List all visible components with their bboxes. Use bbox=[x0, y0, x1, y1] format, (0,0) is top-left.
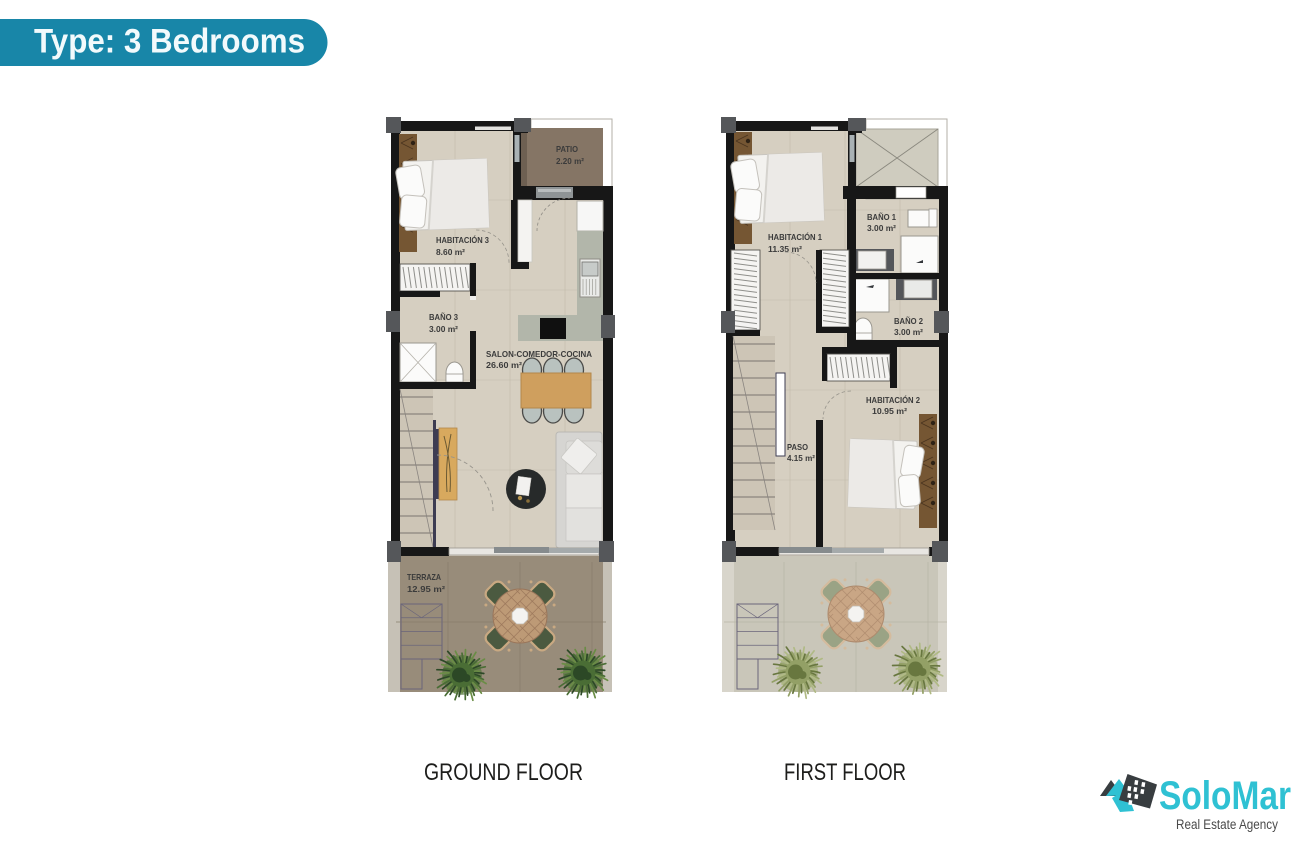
svg-text:BAÑO 1: BAÑO 1 bbox=[867, 212, 896, 222]
svg-text:3.00 m²: 3.00 m² bbox=[429, 324, 458, 334]
svg-text:12.95 m²: 12.95 m² bbox=[407, 584, 445, 594]
svg-text:PASO: PASO bbox=[787, 442, 808, 452]
svg-text:Real Estate Agency: Real Estate Agency bbox=[1176, 817, 1278, 832]
svg-text:FIRST FLOOR: FIRST FLOOR bbox=[784, 759, 906, 786]
svg-text:HABITACIÓN 2: HABITACIÓN 2 bbox=[866, 394, 920, 405]
svg-text:HABITACIÓN 1: HABITACIÓN 1 bbox=[768, 231, 822, 242]
svg-text:HABITACIÓN 3: HABITACIÓN 3 bbox=[436, 234, 489, 245]
svg-text:2.20 m²: 2.20 m² bbox=[556, 156, 584, 166]
svg-text:3.00 m²: 3.00 m² bbox=[867, 223, 896, 233]
svg-text:BAÑO 2: BAÑO 2 bbox=[894, 316, 923, 326]
svg-text:4.15 m²: 4.15 m² bbox=[787, 453, 815, 463]
svg-text:26.60 m²: 26.60 m² bbox=[486, 360, 522, 370]
svg-text:PATIO: PATIO bbox=[556, 144, 578, 154]
svg-text:TERRAZA: TERRAZA bbox=[407, 572, 441, 582]
svg-text:SoloMar: SoloMar bbox=[1159, 774, 1291, 818]
svg-text:3.00 m²: 3.00 m² bbox=[894, 327, 923, 337]
svg-text:SALON-COMEDOR-COCINA: SALON-COMEDOR-COCINA bbox=[486, 349, 592, 359]
svg-text:8.60 m²: 8.60 m² bbox=[436, 247, 465, 257]
svg-text:GROUND FLOOR: GROUND FLOOR bbox=[424, 759, 583, 786]
svg-text:BAÑO 3: BAÑO 3 bbox=[429, 312, 458, 322]
svg-text:Type: 3 Bedrooms: Type: 3 Bedrooms bbox=[34, 23, 305, 61]
svg-text:10.95 m²: 10.95 m² bbox=[872, 406, 907, 416]
svg-text:11.35 m²: 11.35 m² bbox=[768, 244, 802, 254]
